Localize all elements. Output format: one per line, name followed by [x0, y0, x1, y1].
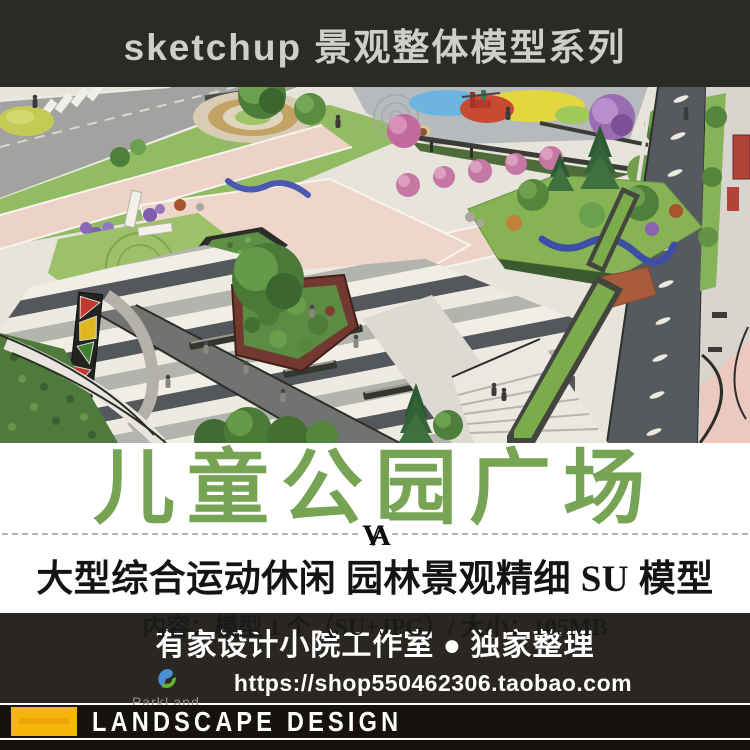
bottom-strip	[0, 738, 750, 750]
header-bar: sketchup 景观整体模型系列	[0, 0, 750, 87]
bottom-bar: LANDSCAPE DESIGN	[0, 705, 750, 738]
title-block: 儿童公园广场 VA 大型综合运动休闲 园林景观精细 SU 模型 内容：模型 1 …	[0, 443, 750, 613]
va-monogram: VA	[360, 519, 389, 553]
header-title: sketchup 景观整体模型系列	[124, 17, 627, 71]
shop-url: https://shop550462306.taobao.com	[234, 670, 632, 697]
yellow-accent-block	[11, 707, 77, 736]
parkland-logo-icon	[151, 666, 181, 696]
hero-render	[0, 87, 750, 443]
hero-render-area	[0, 87, 750, 443]
yellow-block-marks	[19, 718, 69, 724]
right-sidewalk	[698, 87, 750, 443]
content-line: 内容：模型 1 个（SU+JPG）/ 大小：105MB	[0, 607, 750, 642]
subtitle: 大型综合运动休闲 园林景观精细 SU 模型	[0, 548, 750, 602]
bottom-bar-label: LANDSCAPE DESIGN	[92, 706, 402, 738]
red-kiosk	[733, 135, 750, 179]
dashed-divider: VA	[2, 533, 748, 535]
parkland-logo: ParkLand	[118, 666, 214, 710]
